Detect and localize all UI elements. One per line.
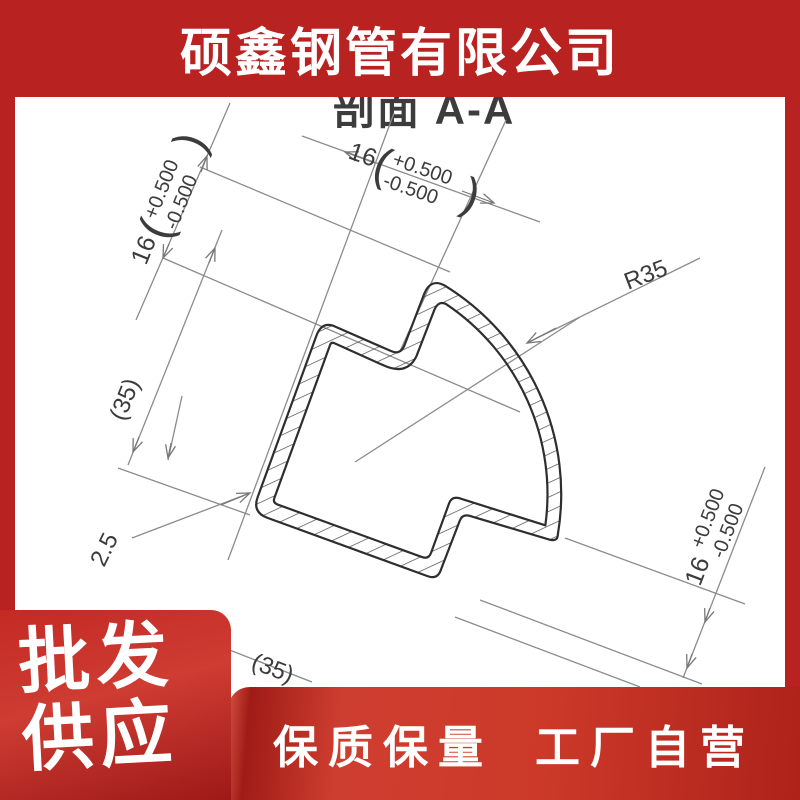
extension-lines <box>118 103 765 687</box>
dim-top: 16 ( +0.500 -0.500 ) <box>340 128 487 222</box>
dim-right-value: 16 <box>679 553 715 589</box>
wholesale-line1: 批发 <box>16 616 176 702</box>
pipe-profile-outline <box>252 250 625 613</box>
svg-text:(35): (35) <box>105 375 146 425</box>
dim-radius-r35: R35 <box>620 255 671 296</box>
wholesale-panel: 批发 供应 <box>0 610 231 800</box>
bottom-banner: 保质保量 工厂自营 <box>228 687 800 800</box>
dim-left-paren-close: ) <box>163 125 217 159</box>
dim-top-paren-close: ) <box>456 167 487 221</box>
svg-text:R35: R35 <box>620 255 671 296</box>
banner-slogan-left: 保质保量 <box>273 711 493 776</box>
wholesale-text: 批发 供应 <box>16 616 180 780</box>
dim-height-35: (35) <box>105 375 146 425</box>
dim-wall-thickness: 2.5 <box>85 529 124 571</box>
svg-text:2.5: 2.5 <box>85 529 124 571</box>
svg-text:(35): (35) <box>248 648 298 689</box>
banner-slogan-right: 工厂自营 <box>535 711 755 776</box>
dim-width-35: (35) <box>248 648 298 689</box>
dimension-arrows <box>133 152 710 668</box>
wholesale-line2: 供应 <box>20 694 180 780</box>
banner-slogan: 保质保量 工厂自营 <box>273 711 755 776</box>
pipe-profile <box>252 250 625 613</box>
dim-right: 16 +0.500 -0.500 <box>674 486 751 593</box>
company-name: 硕鑫钢管有限公司 <box>0 0 800 97</box>
